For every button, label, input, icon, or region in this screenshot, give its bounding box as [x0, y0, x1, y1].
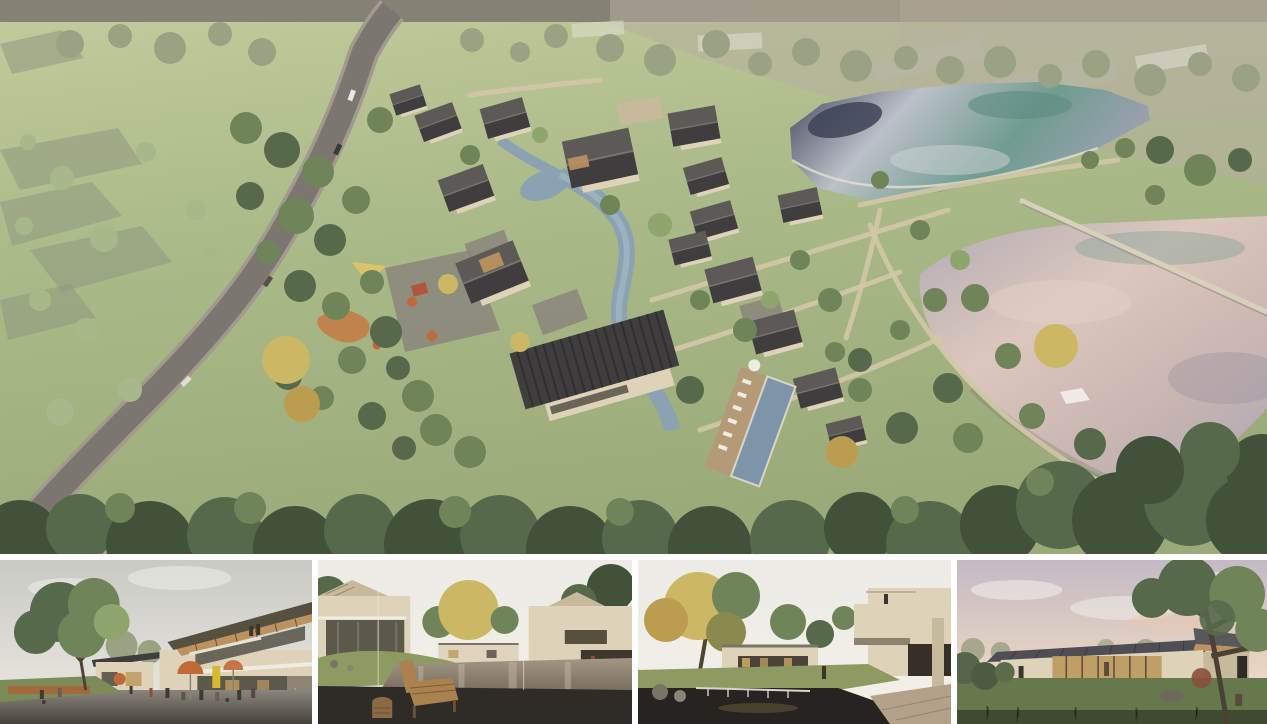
thumbnail-strip: [0, 560, 1267, 724]
distant-buildings: [438, 644, 518, 662]
thumb-courtyard-pool-view: [318, 560, 632, 724]
door: [1237, 656, 1247, 680]
house: [667, 105, 721, 151]
presentation-board: [0, 0, 1267, 724]
carved-stool: [372, 697, 392, 718]
yellow-tree: [438, 580, 498, 640]
person-inside: [1104, 662, 1109, 676]
stump: [1235, 694, 1242, 706]
rock: [1159, 690, 1185, 702]
shop-sign: [212, 666, 220, 688]
red-shrub: [1191, 668, 1211, 688]
person: [822, 666, 826, 679]
thumb-plaza-cafe-view: [0, 560, 312, 724]
foreground-deck: [318, 686, 632, 724]
aerial-site-render: [0, 0, 1267, 554]
planter: [8, 686, 90, 694]
thumb-garden-pond-view: [638, 560, 951, 724]
person-balcony: [884, 594, 888, 604]
thumb-pavilion-dusk-view: [957, 560, 1267, 724]
